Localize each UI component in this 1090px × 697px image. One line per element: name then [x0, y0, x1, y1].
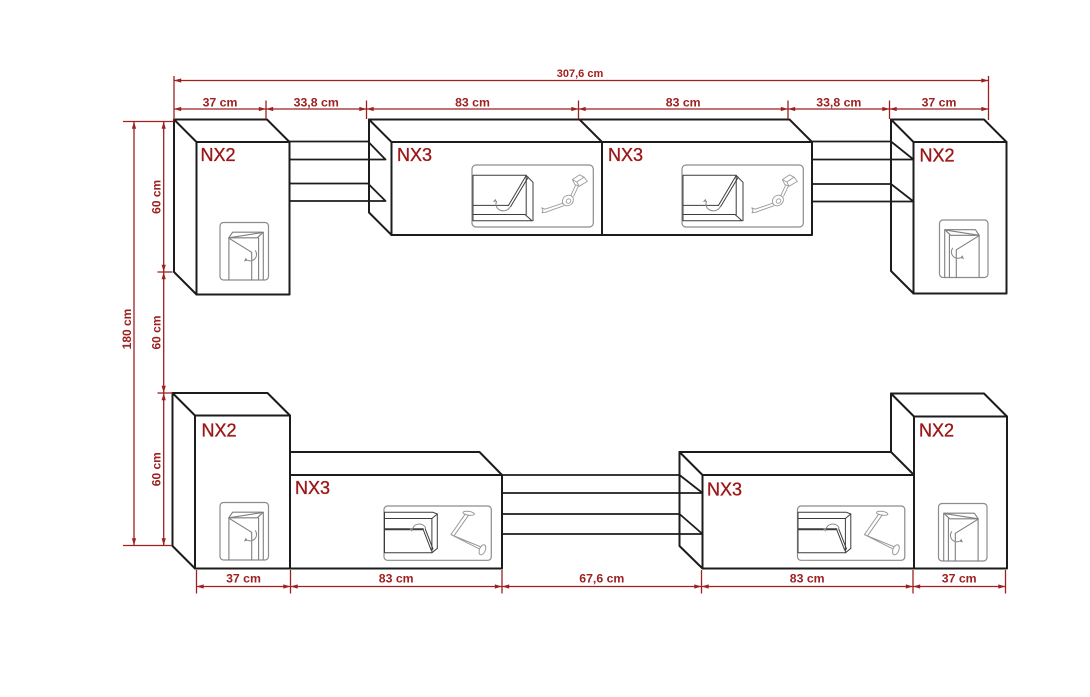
- svg-text:33,8 cm: 33,8 cm: [294, 96, 339, 110]
- svg-text:NX2: NX2: [919, 421, 954, 441]
- svg-text:60 cm: 60 cm: [149, 180, 163, 214]
- svg-text:83 cm: 83 cm: [790, 572, 825, 586]
- svg-text:NX2: NX2: [201, 145, 236, 165]
- svg-text:180 cm: 180 cm: [120, 309, 134, 350]
- svg-text:60 cm: 60 cm: [149, 315, 163, 349]
- svg-text:NX2: NX2: [202, 421, 237, 441]
- svg-text:83 cm: 83 cm: [666, 96, 701, 110]
- svg-text:37 cm: 37 cm: [922, 96, 957, 110]
- svg-text:33,8 cm: 33,8 cm: [816, 96, 861, 110]
- svg-text:83 cm: 83 cm: [455, 96, 490, 110]
- svg-text:83 cm: 83 cm: [379, 572, 414, 586]
- svg-text:307,6 cm: 307,6 cm: [557, 68, 604, 80]
- svg-text:NX3: NX3: [397, 145, 432, 165]
- svg-text:67,6 cm: 67,6 cm: [579, 572, 624, 586]
- svg-text:37 cm: 37 cm: [203, 96, 238, 110]
- svg-text:37 cm: 37 cm: [226, 572, 261, 586]
- svg-text:NX3: NX3: [608, 145, 643, 165]
- svg-text:60 cm: 60 cm: [149, 452, 163, 486]
- svg-text:NX2: NX2: [920, 146, 955, 166]
- svg-text:NX3: NX3: [295, 478, 330, 498]
- svg-text:NX3: NX3: [707, 480, 742, 500]
- svg-text:37 cm: 37 cm: [942, 572, 977, 586]
